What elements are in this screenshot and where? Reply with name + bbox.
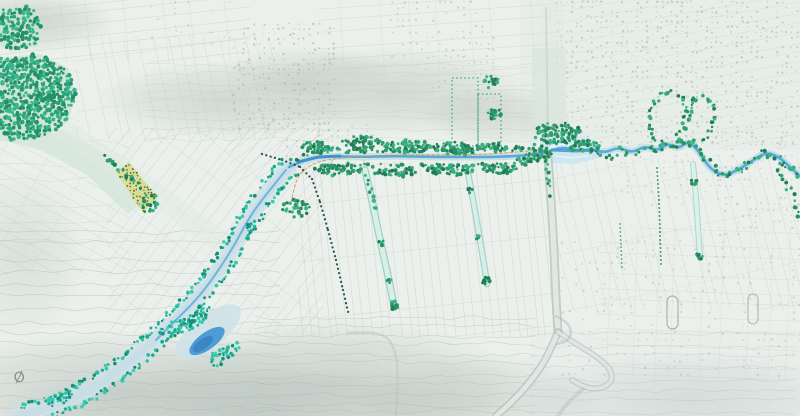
tree-cluster [300, 140, 334, 154]
tree-cluster [373, 167, 417, 179]
map-viewport: Ø [0, 0, 800, 416]
green-band-ne-upper [538, 0, 564, 48]
canal-trees [390, 300, 399, 312]
hillshade-blob [220, 46, 390, 98]
tree-cluster [341, 135, 385, 152]
green-band-ne [532, 48, 566, 135]
site-plan-map [0, 0, 800, 416]
tree-cluster [383, 138, 432, 155]
